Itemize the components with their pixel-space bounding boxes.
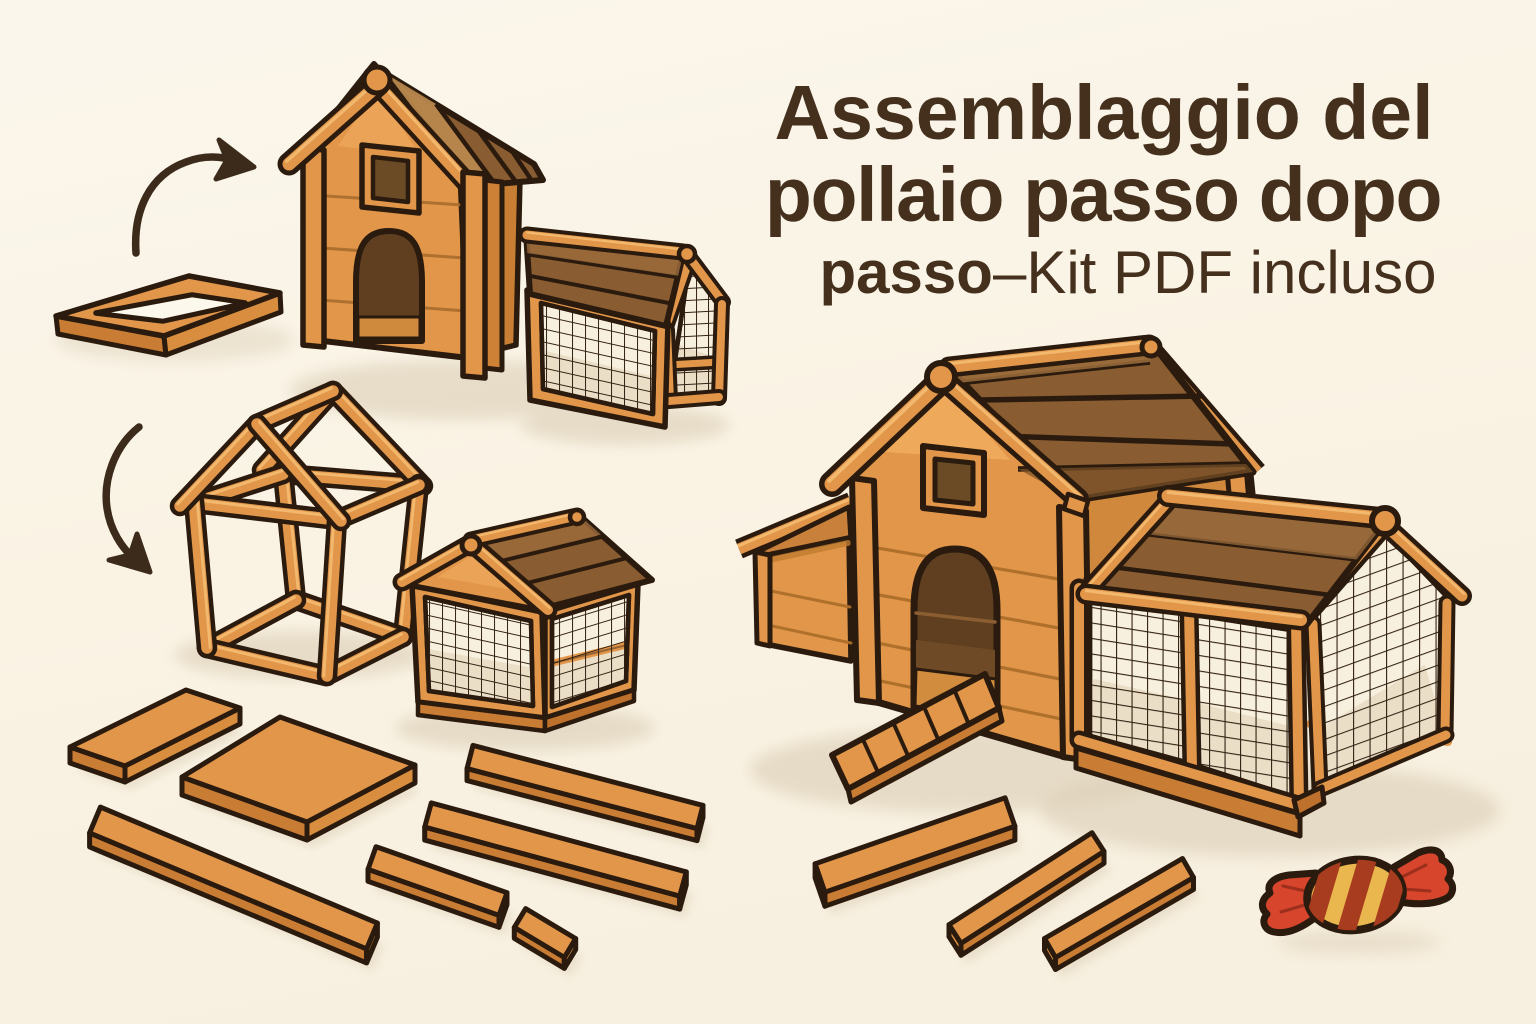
svg-text:pollaio passo dopo: pollaio passo dopo — [765, 152, 1441, 238]
svg-text:Assemblaggio del: Assemblaggio del — [775, 70, 1434, 156]
svg-text:passo–Kit PDF incluso: passo–Kit PDF incluso — [820, 239, 1437, 306]
